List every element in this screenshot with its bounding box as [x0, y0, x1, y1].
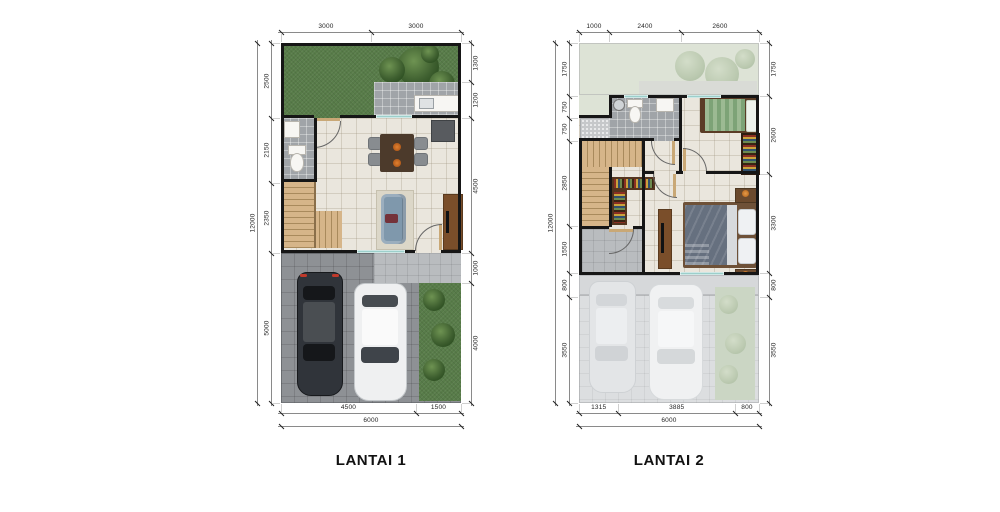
- stairs2-flight: [582, 167, 609, 227]
- taillight: [332, 274, 339, 277]
- toilet-bowl: [629, 106, 641, 123]
- dining-chair: [414, 137, 428, 150]
- dim-ext: [570, 96, 578, 97]
- car-windshield: [361, 347, 399, 363]
- car-ghost: [589, 281, 636, 393]
- dim-ext: [570, 273, 578, 274]
- car-dark: [297, 272, 343, 396]
- stairs-rail-wall: [609, 167, 612, 227]
- master-tv: [661, 223, 664, 253]
- dim-label: 1550: [562, 242, 569, 257]
- dim-rail: [278, 413, 464, 414]
- dim-label: 3550: [771, 342, 778, 357]
- hall-shelf-books: [614, 192, 625, 223]
- dim-ext: [570, 43, 578, 44]
- dim-label: 3000: [408, 23, 423, 30]
- dim-ext: [461, 404, 462, 412]
- wall: [706, 171, 759, 174]
- dim-ext: [618, 404, 619, 412]
- bed-throw: [685, 241, 709, 265]
- car-roof: [596, 308, 627, 344]
- roof-patio-faded: [639, 81, 757, 94]
- plant-faded: [735, 49, 755, 69]
- dim-ext: [759, 404, 760, 412]
- wall: [633, 226, 645, 229]
- window: [624, 95, 648, 98]
- dim-ext: [579, 404, 580, 412]
- dim-ext: [462, 43, 470, 44]
- plant: [431, 323, 455, 347]
- master-bed-sheet: [727, 205, 737, 265]
- car-rear-glass: [362, 295, 398, 307]
- hall-shelf-books: [614, 179, 653, 188]
- pillow: [738, 209, 756, 235]
- dim-label: 3885: [669, 404, 684, 411]
- dim-label: 1000: [473, 260, 480, 275]
- dim-ext: [681, 33, 682, 42]
- plant: [421, 45, 439, 63]
- car-roof: [303, 302, 335, 342]
- dim-label: 4500: [473, 178, 480, 193]
- dim-label: 750: [562, 124, 569, 135]
- dim-label: 1500: [431, 404, 446, 411]
- dim-label: 800: [562, 279, 569, 290]
- car-rear-glass: [596, 294, 627, 306]
- dim-label: 800: [741, 404, 752, 411]
- dim-ext: [760, 43, 768, 44]
- dim-label: 2600: [712, 23, 727, 30]
- dim-ext: [462, 118, 470, 119]
- dim-ext: [281, 404, 282, 412]
- tv: [446, 211, 449, 233]
- dim-label: 2850: [562, 176, 569, 191]
- lantai1-plan: 3000300045001500600025002150235050001200…: [281, 43, 461, 403]
- dim-label: 4500: [341, 404, 356, 411]
- plant-faded: [725, 333, 746, 354]
- dim-label: 1750: [562, 62, 569, 77]
- dim-ext: [759, 33, 760, 42]
- dim-ext: [462, 253, 470, 254]
- car-ghost: [649, 284, 703, 400]
- dim-ext: [281, 33, 282, 42]
- wall: [281, 43, 461, 46]
- bathroom2-sink: [656, 98, 674, 112]
- stairs-flight: [314, 211, 342, 248]
- dim-ext: [570, 297, 578, 298]
- stairs-rail: [314, 182, 316, 248]
- plant: [379, 57, 405, 83]
- dining-chair: [414, 153, 428, 166]
- front-terrace: [374, 253, 461, 283]
- wall: [676, 171, 683, 174]
- plant-faded: [675, 51, 705, 81]
- dim-rail: [576, 32, 762, 33]
- lantai2-plan: 1000240026001315388580060001750750750285…: [579, 43, 759, 403]
- dim-ext: [462, 403, 470, 404]
- wall: [281, 115, 314, 118]
- dim-ext: [272, 253, 280, 254]
- cabinet: [431, 120, 455, 142]
- car-windshield: [657, 349, 695, 364]
- dim-label: 1300: [473, 55, 480, 70]
- dim-ext: [570, 141, 578, 142]
- dim-rail: [555, 40, 556, 406]
- shower: [613, 99, 625, 111]
- dim-ext: [760, 96, 768, 97]
- plant-faded: [719, 365, 738, 384]
- car-rear-glass: [658, 297, 694, 309]
- dim-label: 3000: [318, 23, 333, 30]
- dim-ext: [579, 33, 580, 42]
- car-windshield: [303, 344, 335, 361]
- wall: [579, 115, 611, 118]
- dim-label: 5000: [264, 320, 271, 335]
- wall: [756, 95, 759, 275]
- car-white: [354, 283, 407, 401]
- dim-ext: [760, 297, 768, 298]
- single-bed-mattress: [705, 99, 745, 131]
- wall: [281, 179, 317, 182]
- dim-ext: [760, 273, 768, 274]
- toilet-bowl: [290, 153, 304, 172]
- lamp: [742, 190, 749, 197]
- plant-faded: [719, 295, 738, 314]
- dim-label: 2500: [264, 73, 271, 88]
- dim-label: 12000: [548, 213, 555, 232]
- dim-rail: [278, 426, 464, 427]
- dim-ext: [462, 82, 470, 83]
- dim-label: 800: [771, 279, 778, 290]
- wall: [579, 138, 582, 275]
- dim-ext: [609, 33, 610, 42]
- lantai1-label: LANTAI 1: [301, 452, 441, 469]
- lantai2-label: LANTAI 2: [599, 452, 739, 469]
- dim-ext: [570, 118, 578, 119]
- dim-rail: [257, 40, 258, 406]
- dim-ext: [461, 33, 462, 42]
- bathroom-sink: [284, 121, 300, 138]
- dim-ext: [371, 33, 372, 42]
- wall: [642, 140, 645, 275]
- dim-label: 2600: [771, 127, 778, 142]
- dim-label: 2400: [637, 23, 652, 30]
- dim-ext: [462, 283, 470, 284]
- dim-label: 1200: [473, 92, 480, 107]
- wall: [679, 95, 682, 174]
- dim-ext: [272, 43, 280, 44]
- dim-ext: [570, 403, 578, 404]
- wall: [579, 226, 609, 229]
- window: [687, 95, 721, 98]
- dim-label: 6000: [363, 417, 378, 424]
- dim-label: 1000: [586, 23, 601, 30]
- dim-label: 12000: [250, 213, 257, 232]
- dim-label: 2150: [264, 143, 271, 158]
- dim-label: 6000: [661, 417, 676, 424]
- kitchen-sink: [419, 98, 434, 109]
- car-windshield: [595, 346, 628, 361]
- dim-ext: [272, 118, 280, 119]
- dim-rail: [576, 426, 762, 427]
- car-roof: [362, 309, 398, 345]
- dim-ext: [735, 404, 736, 412]
- plate: [393, 159, 401, 167]
- window: [376, 115, 412, 118]
- dim-label: 1315: [591, 404, 606, 411]
- dim-label: 1750: [771, 62, 778, 77]
- dim-ext: [272, 403, 280, 404]
- sofa-pillow: [385, 214, 398, 223]
- dim-label: 3300: [771, 215, 778, 230]
- taillight: [300, 274, 307, 277]
- dim-ext: [570, 226, 578, 227]
- dim-ext: [272, 183, 280, 184]
- dim-label: 2350: [264, 210, 271, 225]
- wall: [281, 43, 284, 253]
- dim-rail: [271, 40, 272, 406]
- plant: [423, 289, 445, 311]
- stairs-flight: [284, 182, 314, 248]
- pillow: [738, 238, 756, 264]
- dim-ext: [760, 174, 768, 175]
- dim-label: 750: [562, 101, 569, 112]
- car-rear-glass: [303, 286, 335, 300]
- wall: [458, 43, 461, 253]
- wall: [314, 118, 317, 179]
- dim-ext: [416, 404, 417, 412]
- plant: [423, 359, 445, 381]
- stairs2-flight: [582, 141, 642, 167]
- dim-ext: [760, 403, 768, 404]
- car-roof: [658, 311, 694, 347]
- floor-plan-canvas: 3000300045001500600025002150235050001200…: [0, 0, 1000, 512]
- dim-label: 3550: [562, 342, 569, 357]
- plate: [393, 143, 401, 151]
- dim-label: 4000: [473, 335, 480, 350]
